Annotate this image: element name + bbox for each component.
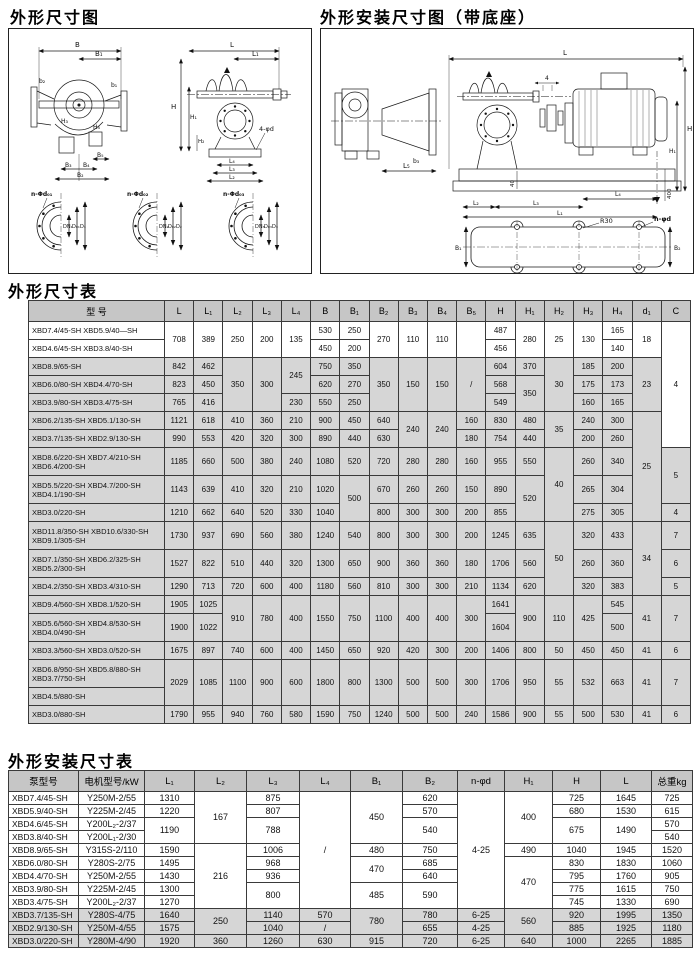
model-cell: XBD3.7/135-SH XBD2.9/130-SH (29, 430, 165, 448)
value-cell: Y200L₁-2/30 (79, 831, 145, 844)
value-cell: 550 (515, 448, 544, 476)
table-row: XBD3.7/135-SHY280S-4/7516402501140570780… (9, 909, 693, 922)
value-cell: 500 (427, 706, 456, 724)
value-cell: 470 (351, 857, 403, 883)
value-cell: 260 (398, 476, 427, 504)
table1-title: 外形尺寸表 (8, 278, 98, 302)
value-cell: 50 (544, 522, 573, 596)
value-cell: 955 (486, 448, 515, 476)
value-cell: 200 (252, 322, 281, 358)
column-header: L (601, 771, 652, 792)
value-cell: 1530 (601, 805, 652, 818)
value-cell: 55 (544, 660, 573, 706)
value-cell: 500 (398, 706, 427, 724)
value-cell: 1900 (165, 614, 194, 642)
value-cell: 300 (281, 430, 310, 448)
flange-2-leader-label: n-Φd₀₂ (127, 191, 149, 198)
value-cell: 440 (515, 430, 544, 448)
header-row: 型 号LL₁L₂L₃L₄BB₁B₂B₃B₄B₅HH₁H₂H₃H₄d₁C (29, 301, 691, 322)
value-cell: 450 (351, 792, 403, 844)
value-cell: Y280S-4/75 (79, 909, 145, 922)
column-header: B₄ (427, 301, 456, 322)
value-cell: 510 (223, 550, 252, 578)
model-cell: XBD5.5/220-SH XBD4.7/200-SH XBD4.1/190-S… (29, 476, 165, 504)
value-cell: 680 (553, 805, 601, 818)
value-cell: 618 (194, 412, 223, 430)
column-header: n-φd (458, 771, 505, 792)
value-cell: 570 (300, 909, 351, 922)
value-cell: 788 (247, 818, 300, 844)
value-cell: 270 (369, 322, 398, 358)
value-cell: 550 (311, 394, 340, 412)
flange-1-d0-label: D₀₁ (72, 224, 80, 230)
value-cell: 1121 (165, 412, 194, 430)
value-cell: 470 (505, 857, 553, 909)
value-cell: 480 (351, 844, 403, 857)
value-cell: 765 (165, 394, 194, 412)
value-cell: 890 (486, 476, 515, 504)
dim-label-L: L (230, 41, 234, 49)
value-cell: 485 (351, 883, 403, 909)
value-cell: 540 (403, 818, 458, 844)
model-cell: XBD3.9/80-SH XBD3.4/75-SH (29, 394, 165, 412)
value-cell: 200 (603, 358, 632, 376)
column-header: H₁ (515, 301, 544, 322)
value-cell: / (300, 792, 351, 909)
value-cell: 240 (398, 412, 427, 448)
dim-label-B1: B₁ (95, 50, 103, 58)
table-row: XBD4.2/350-SH XBD3.4/310-SH1290713720600… (29, 578, 691, 596)
value-cell: 180 (457, 550, 486, 578)
value-cell: 360 (252, 412, 281, 430)
value-cell: 725 (553, 792, 601, 805)
installation-dimension-table: 泵型号电机型号/kWL₁L₂L₃L₄B₁B₂n-φdH₁HL总重kgXBD7.4… (8, 770, 693, 948)
model-cell: XBD5.9/40-SH (9, 805, 79, 818)
value-cell: 640 (369, 412, 398, 430)
value-cell: 910 (223, 596, 252, 642)
column-header: H₄ (603, 301, 632, 322)
value-cell: 800 (369, 522, 398, 550)
dim-label-H: H (687, 125, 692, 133)
model-cell: XBD4.6/45-SH (9, 818, 79, 831)
dim-label-L5: L₅ (403, 162, 410, 170)
model-cell: XBD4.5/880-SH (29, 688, 165, 706)
value-cell: 822 (194, 550, 223, 578)
model-cell: XBD6.8/950-SH XBD5.8/880-SH XBD3.7/750-S… (29, 660, 165, 688)
value-cell: 7 (661, 522, 690, 550)
value-cell: 25 (544, 322, 573, 358)
value-cell: 150 (457, 476, 486, 504)
value-cell: 420 (398, 642, 427, 660)
value-cell: 630 (300, 935, 351, 948)
value-cell: 240 (427, 412, 456, 448)
value-cell: 480 (515, 412, 544, 430)
value-cell: 400 (281, 596, 310, 642)
value-cell: 416 (194, 394, 223, 412)
value-cell: 280 (398, 448, 427, 476)
value-cell: 165 (603, 394, 632, 412)
side-view-labels: L L₁ H H₁ H₂ 4-φd L₄ L₃ L₂ (171, 41, 274, 181)
value-cell: 500 (223, 448, 252, 476)
value-cell: 1134 (486, 578, 515, 596)
installation-dimension-drawing: b₃ L₅ L 4 H (321, 29, 693, 273)
value-cell: 320 (574, 578, 603, 596)
value-cell: 1180 (311, 578, 340, 596)
value-cell: 1006 (247, 844, 300, 857)
value-cell: 450 (311, 340, 340, 358)
header-row: 泵型号电机型号/kWL₁L₂L₃L₄B₁B₂n-φdH₁HL总重kg (9, 771, 693, 792)
pump-end-view (331, 89, 441, 171)
value-cell: 350 (515, 376, 544, 412)
value-cell: 173 (603, 376, 632, 394)
model-cell: XBD4.6/45-SH XBD3.8/40-SH (29, 340, 165, 358)
column-header: C (661, 301, 690, 322)
value-cell: 6 (661, 642, 690, 660)
value-cell: 2265 (601, 935, 652, 948)
value-cell: 750 (403, 844, 458, 857)
value-cell: 1920 (145, 935, 195, 948)
value-cell: 330 (281, 504, 310, 522)
value-cell: 900 (369, 550, 398, 578)
value-cell: 620 (311, 376, 340, 394)
model-cell: XBD7.1/350-SH XBD6.2/325-SH XBD5.2/300-S… (29, 550, 165, 578)
value-cell: 320 (281, 550, 310, 578)
value-cell: 1020 (311, 476, 340, 504)
value-cell: 7 (661, 660, 690, 706)
value-cell: 350 (369, 358, 398, 412)
value-cell: 1706 (486, 550, 515, 578)
value-cell: 690 (652, 896, 693, 909)
value-cell: 360 (398, 550, 427, 578)
value-cell: 560 (340, 578, 369, 596)
value-cell: 1675 (165, 642, 194, 660)
value-cell: 639 (194, 476, 223, 504)
value-cell: 240 (281, 448, 310, 476)
value-cell: 150 (427, 358, 456, 412)
value-cell: 6 (661, 706, 690, 724)
value-cell: 780 (351, 909, 403, 935)
model-cell: XBD3.4/75-SH (9, 896, 79, 909)
value-cell: 920 (553, 909, 601, 922)
value-cell: 1640 (145, 909, 195, 922)
value-cell: 270 (340, 376, 369, 394)
value-cell: 713 (194, 578, 223, 596)
pump-front-view (31, 47, 127, 181)
value-cell: 1220 (145, 805, 195, 818)
column-header: L₂ (223, 301, 252, 322)
value-cell: 1520 (652, 844, 693, 857)
column-header: B₁ (351, 771, 403, 792)
value-cell: 750 (652, 883, 693, 896)
value-cell: 280 (515, 322, 544, 358)
flange-2-labels: n-Φd₀₂ DN₂ D₀₂ D₂ (127, 191, 182, 230)
value-cell: 487 (486, 322, 515, 340)
value-cell: Y250M-2/55 (79, 792, 145, 805)
dim-label-H1: H₁ (190, 114, 198, 121)
value-cell: 200 (457, 504, 486, 522)
value-cell: 300 (398, 504, 427, 522)
value-cell: 450 (603, 642, 632, 660)
dim-label-b3: b₃ (413, 158, 420, 165)
value-cell: 1330 (601, 896, 652, 909)
model-cell: XBD8.9/65-SH (9, 844, 79, 857)
value-cell: 245 (281, 358, 310, 394)
model-cell: XBD6.2/135-SH XBD5.1/130-SH (29, 412, 165, 430)
value-cell: 490 (505, 844, 553, 857)
pump-side-view (181, 47, 291, 181)
value-cell: 1060 (652, 857, 693, 870)
value-cell: 1290 (165, 578, 194, 596)
model-cell: XBD6.0/80-SH (9, 857, 79, 870)
value-cell: 955 (194, 706, 223, 724)
value-cell: 230 (281, 394, 310, 412)
value-cell: 532 (574, 660, 603, 706)
value-cell: 750 (340, 596, 369, 642)
model-cell: XBD3.0/220-SH (29, 504, 165, 522)
value-cell: 380 (252, 448, 281, 476)
value-cell: 410 (223, 412, 252, 430)
value-cell: 549 (486, 394, 515, 412)
value-cell: 1800 (311, 660, 340, 706)
value-cell: 1586 (486, 706, 515, 724)
value-cell: 1590 (145, 844, 195, 857)
value-cell: 1300 (145, 883, 195, 896)
value-cell: 675 (553, 818, 601, 844)
dim-label-4-phi-d: 4-φd (259, 125, 274, 133)
dim-label-L1: L₁ (252, 50, 259, 58)
model-cell: XBD5.6/560-SH XBD4.8/530-SH XBD4.0/490-S… (29, 614, 165, 642)
value-cell: 300 (603, 412, 632, 430)
value-cell: 670 (369, 476, 398, 504)
value-cell: 200 (457, 642, 486, 660)
value-cell: 340 (603, 448, 632, 476)
value-cell: 260 (427, 476, 456, 504)
value-cell: 540 (652, 831, 693, 844)
flange-3-leader-label: n-Φd₀₃ (223, 191, 245, 198)
value-cell: 165 (603, 322, 632, 340)
flange-3-d-label: D₃ (272, 224, 278, 230)
value-cell: 425 (574, 596, 603, 642)
value-cell: 780 (403, 909, 458, 922)
value-cell: 775 (553, 883, 601, 896)
value-cell: 23 (632, 358, 661, 412)
table-row: XBD8.9/65-SHY315S-2/11015902161006480750… (9, 844, 693, 857)
value-cell: 580 (281, 706, 310, 724)
value-cell: 662 (194, 504, 223, 522)
value-cell: 4 (661, 322, 690, 448)
value-cell: 1925 (601, 922, 652, 935)
model-cell: XBD6.0/80-SH XBD4.4/70-SH (29, 376, 165, 394)
value-cell: 180 (457, 430, 486, 448)
model-cell: XBD3.0/880-SH (29, 706, 165, 724)
outline-dimension-diagram: B B₁ b₂ b₁ H₃ H₄ B₅ B₃ B₄ B₂ L (8, 28, 312, 274)
assembly-labels: L 4 H H₁ 40 400 L₄ L₂ L₃ L₁ (473, 49, 692, 217)
dim-label-400: 400 (667, 188, 673, 199)
table-row: XBD3.3/560-SH XBD3.0/520-SH1675897740600… (29, 642, 691, 660)
value-cell: 1180 (652, 922, 693, 935)
value-cell: 553 (194, 430, 223, 448)
value-cell: 1945 (601, 844, 652, 857)
value-cell: 210 (281, 476, 310, 504)
left-diagram-title: 外形尺寸图 (10, 4, 100, 28)
value-cell: 110 (427, 322, 456, 358)
pump-motor-assembly (449, 55, 685, 217)
column-header: L₂ (195, 771, 247, 792)
value-cell: 420 (223, 430, 252, 448)
model-cell: XBD8.9/65-SH (29, 358, 165, 376)
value-cell: 200 (574, 430, 603, 448)
flange-2-d0-label: D₀₂ (168, 224, 176, 230)
column-header: B₂ (369, 301, 398, 322)
column-header: L (165, 301, 194, 322)
value-cell: 800 (247, 883, 300, 909)
value-cell: 6 (661, 550, 690, 578)
table-row: XBD7.1/350-SH XBD6.2/325-SH XBD5.2/300-S… (29, 550, 691, 578)
value-cell: 1885 (652, 935, 693, 948)
table-row: XBD8.9/65-SH8424623503002457503503501501… (29, 358, 691, 376)
value-cell: 360 (427, 550, 456, 578)
value-cell: 1140 (247, 909, 300, 922)
value-cell: 1300 (311, 550, 340, 578)
column-header: H (553, 771, 601, 792)
value-cell: Y315S-2/110 (79, 844, 145, 857)
dim-label-B1: B₁ (455, 245, 462, 252)
value-cell: 800 (369, 504, 398, 522)
dim-label-B5: B₅ (97, 152, 104, 159)
value-cell: 450 (574, 642, 603, 660)
value-cell: 1760 (601, 870, 652, 883)
value-cell: 41 (632, 642, 661, 660)
flange-3-d0-label: D₀₃ (264, 224, 272, 230)
base-plan-labels: R30 n-φd B₁ B₂ (455, 215, 681, 252)
value-cell: 150 (398, 358, 427, 412)
value-cell: 130 (574, 322, 603, 358)
dim-label-b2: b₂ (39, 78, 46, 85)
flange-1-leader-label: n-Φd₀₁ (31, 191, 53, 198)
column-header: 总重kg (652, 771, 693, 792)
column-header: H₁ (505, 771, 553, 792)
value-cell: 260 (603, 430, 632, 448)
value-cell: 280 (427, 448, 456, 476)
value-cell: Y250M-2/55 (79, 870, 145, 883)
value-cell: 110 (544, 596, 573, 642)
value-cell: 740 (223, 642, 252, 660)
value-cell: 1025 (194, 596, 223, 614)
value-cell: Y280S-2/75 (79, 857, 145, 870)
value-cell: 240 (574, 412, 603, 430)
table2-title: 外形安装尺寸表 (8, 748, 134, 772)
table-row: XBD6.2/135-SH XBD5.1/130-SH1121618410360… (29, 412, 691, 430)
value-cell: 807 (247, 805, 300, 818)
value-cell: 560 (252, 522, 281, 550)
value-cell: 34 (632, 522, 661, 596)
column-header: L₄ (300, 771, 351, 792)
value-cell: 1245 (486, 522, 515, 550)
flange-1-labels: n-Φd₀₁ DN₁ D₀₁ D₁ (31, 191, 86, 230)
dim-label-b1: b₁ (111, 82, 118, 89)
value-cell: 160 (574, 394, 603, 412)
dim-label-L4: L₄ (615, 191, 621, 198)
value-cell: 305 (603, 504, 632, 522)
value-cell: 140 (603, 340, 632, 358)
value-cell: 4-25 (458, 792, 505, 909)
value-cell: 950 (515, 660, 544, 706)
dim-label-L3: L₃ (229, 166, 235, 173)
value-cell: 1100 (223, 660, 252, 706)
value-cell: 570 (403, 805, 458, 818)
value-cell: Y225M-2/45 (79, 805, 145, 818)
value-cell: 30 (544, 358, 573, 412)
value-cell: 937 (194, 522, 223, 550)
value-cell: 590 (403, 883, 458, 909)
value-cell: 5 (661, 448, 690, 504)
dim-label-n-phi-d: n-φd (654, 215, 671, 223)
column-header: H (486, 301, 515, 322)
model-cell: XBD4.2/350-SH XBD3.4/310-SH (29, 578, 165, 596)
value-cell: 200 (340, 340, 369, 358)
value-cell: 635 (515, 522, 544, 550)
value-cell: 250 (223, 322, 252, 358)
table-row: XBD6.8/950-SH XBD5.8/880-SH XBD3.7/750-S… (29, 660, 691, 688)
value-cell: 304 (603, 476, 632, 504)
value-cell: 520 (340, 448, 369, 476)
value-cell: 1270 (145, 896, 195, 909)
value-cell: 1575 (145, 922, 195, 935)
model-cell: XBD3.7/135-SH (9, 909, 79, 922)
value-cell: 1995 (601, 909, 652, 922)
value-cell: 1350 (652, 909, 693, 922)
value-cell: 250 (340, 394, 369, 412)
value-cell: 1490 (601, 818, 652, 844)
value-cell: 350 (340, 358, 369, 376)
value-cell: 720 (403, 935, 458, 948)
value-cell: 855 (486, 504, 515, 522)
model-cell: XBD3.0/220-SH (9, 935, 79, 948)
value-cell: 720 (223, 578, 252, 596)
value-cell: 1185 (165, 448, 194, 476)
value-cell: 1830 (601, 857, 652, 870)
value-cell: 830 (553, 857, 601, 870)
value-cell: 900 (311, 412, 340, 430)
value-cell: 600 (281, 660, 310, 706)
value-cell: 4 (661, 504, 690, 522)
value-cell: 905 (652, 870, 693, 883)
value-cell: 167 (195, 792, 247, 844)
value-cell: 990 (165, 430, 194, 448)
model-cell: XBD2.9/130-SH (9, 922, 79, 935)
column-header: L₃ (247, 771, 300, 792)
value-cell: 530 (603, 706, 632, 724)
dim-label-B2: B₂ (77, 172, 84, 179)
value-cell: 4-25 (458, 922, 505, 935)
value-cell: 300 (427, 504, 456, 522)
value-cell: 25 (632, 412, 661, 522)
value-cell: 875 (247, 792, 300, 805)
value-cell: 360 (603, 550, 632, 578)
value-cell: 630 (369, 430, 398, 448)
value-cell: 600 (252, 642, 281, 660)
value-cell: 6-25 (458, 935, 505, 948)
value-cell: 1240 (369, 706, 398, 724)
value-cell: 760 (252, 706, 281, 724)
value-cell: 842 (165, 358, 194, 376)
dim-label-B2: B₂ (674, 245, 681, 252)
value-cell: 370 (515, 358, 544, 376)
column-header: B₁ (340, 301, 369, 322)
table-row: XBD3.7/135-SH XBD2.9/130-SH9905534203203… (29, 430, 691, 448)
column-header: L₁ (194, 301, 223, 322)
model-cell: XBD3.3/560-SH XBD3.0/520-SH (29, 642, 165, 660)
